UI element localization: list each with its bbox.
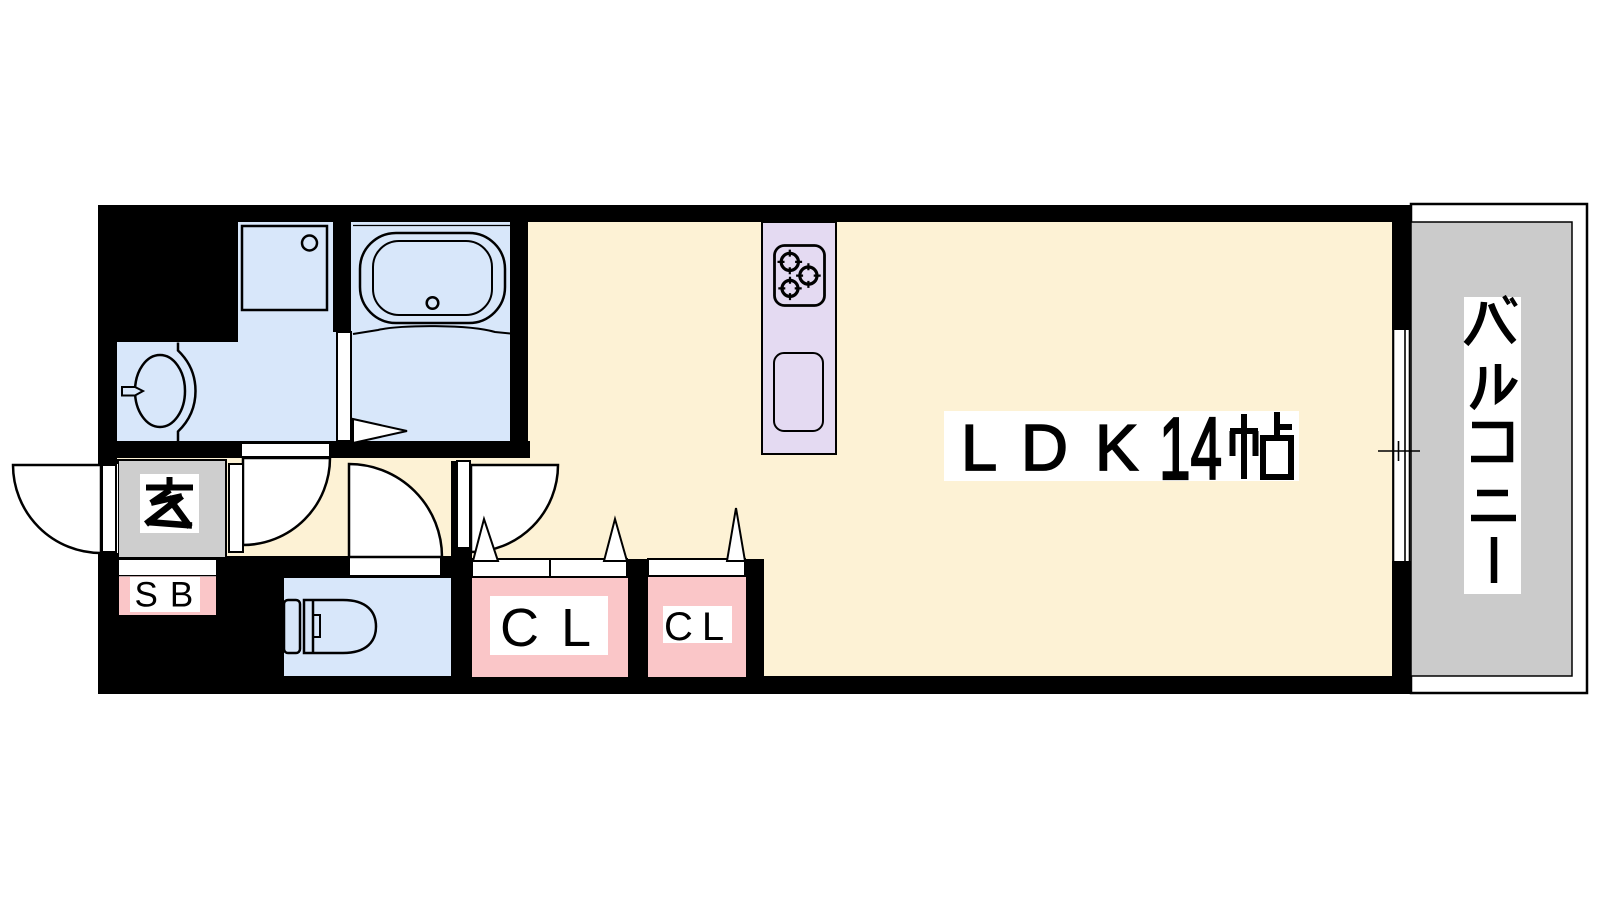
svg-text:K: K [1095,411,1138,484]
svg-text:CL: CL [664,605,733,649]
svg-text:CL: CL [500,598,613,658]
svg-text:L: L [961,411,997,484]
svg-text:D: D [1021,411,1068,484]
svg-text:14: 14 [1159,399,1222,498]
svg-text:SB: SB [135,576,206,615]
